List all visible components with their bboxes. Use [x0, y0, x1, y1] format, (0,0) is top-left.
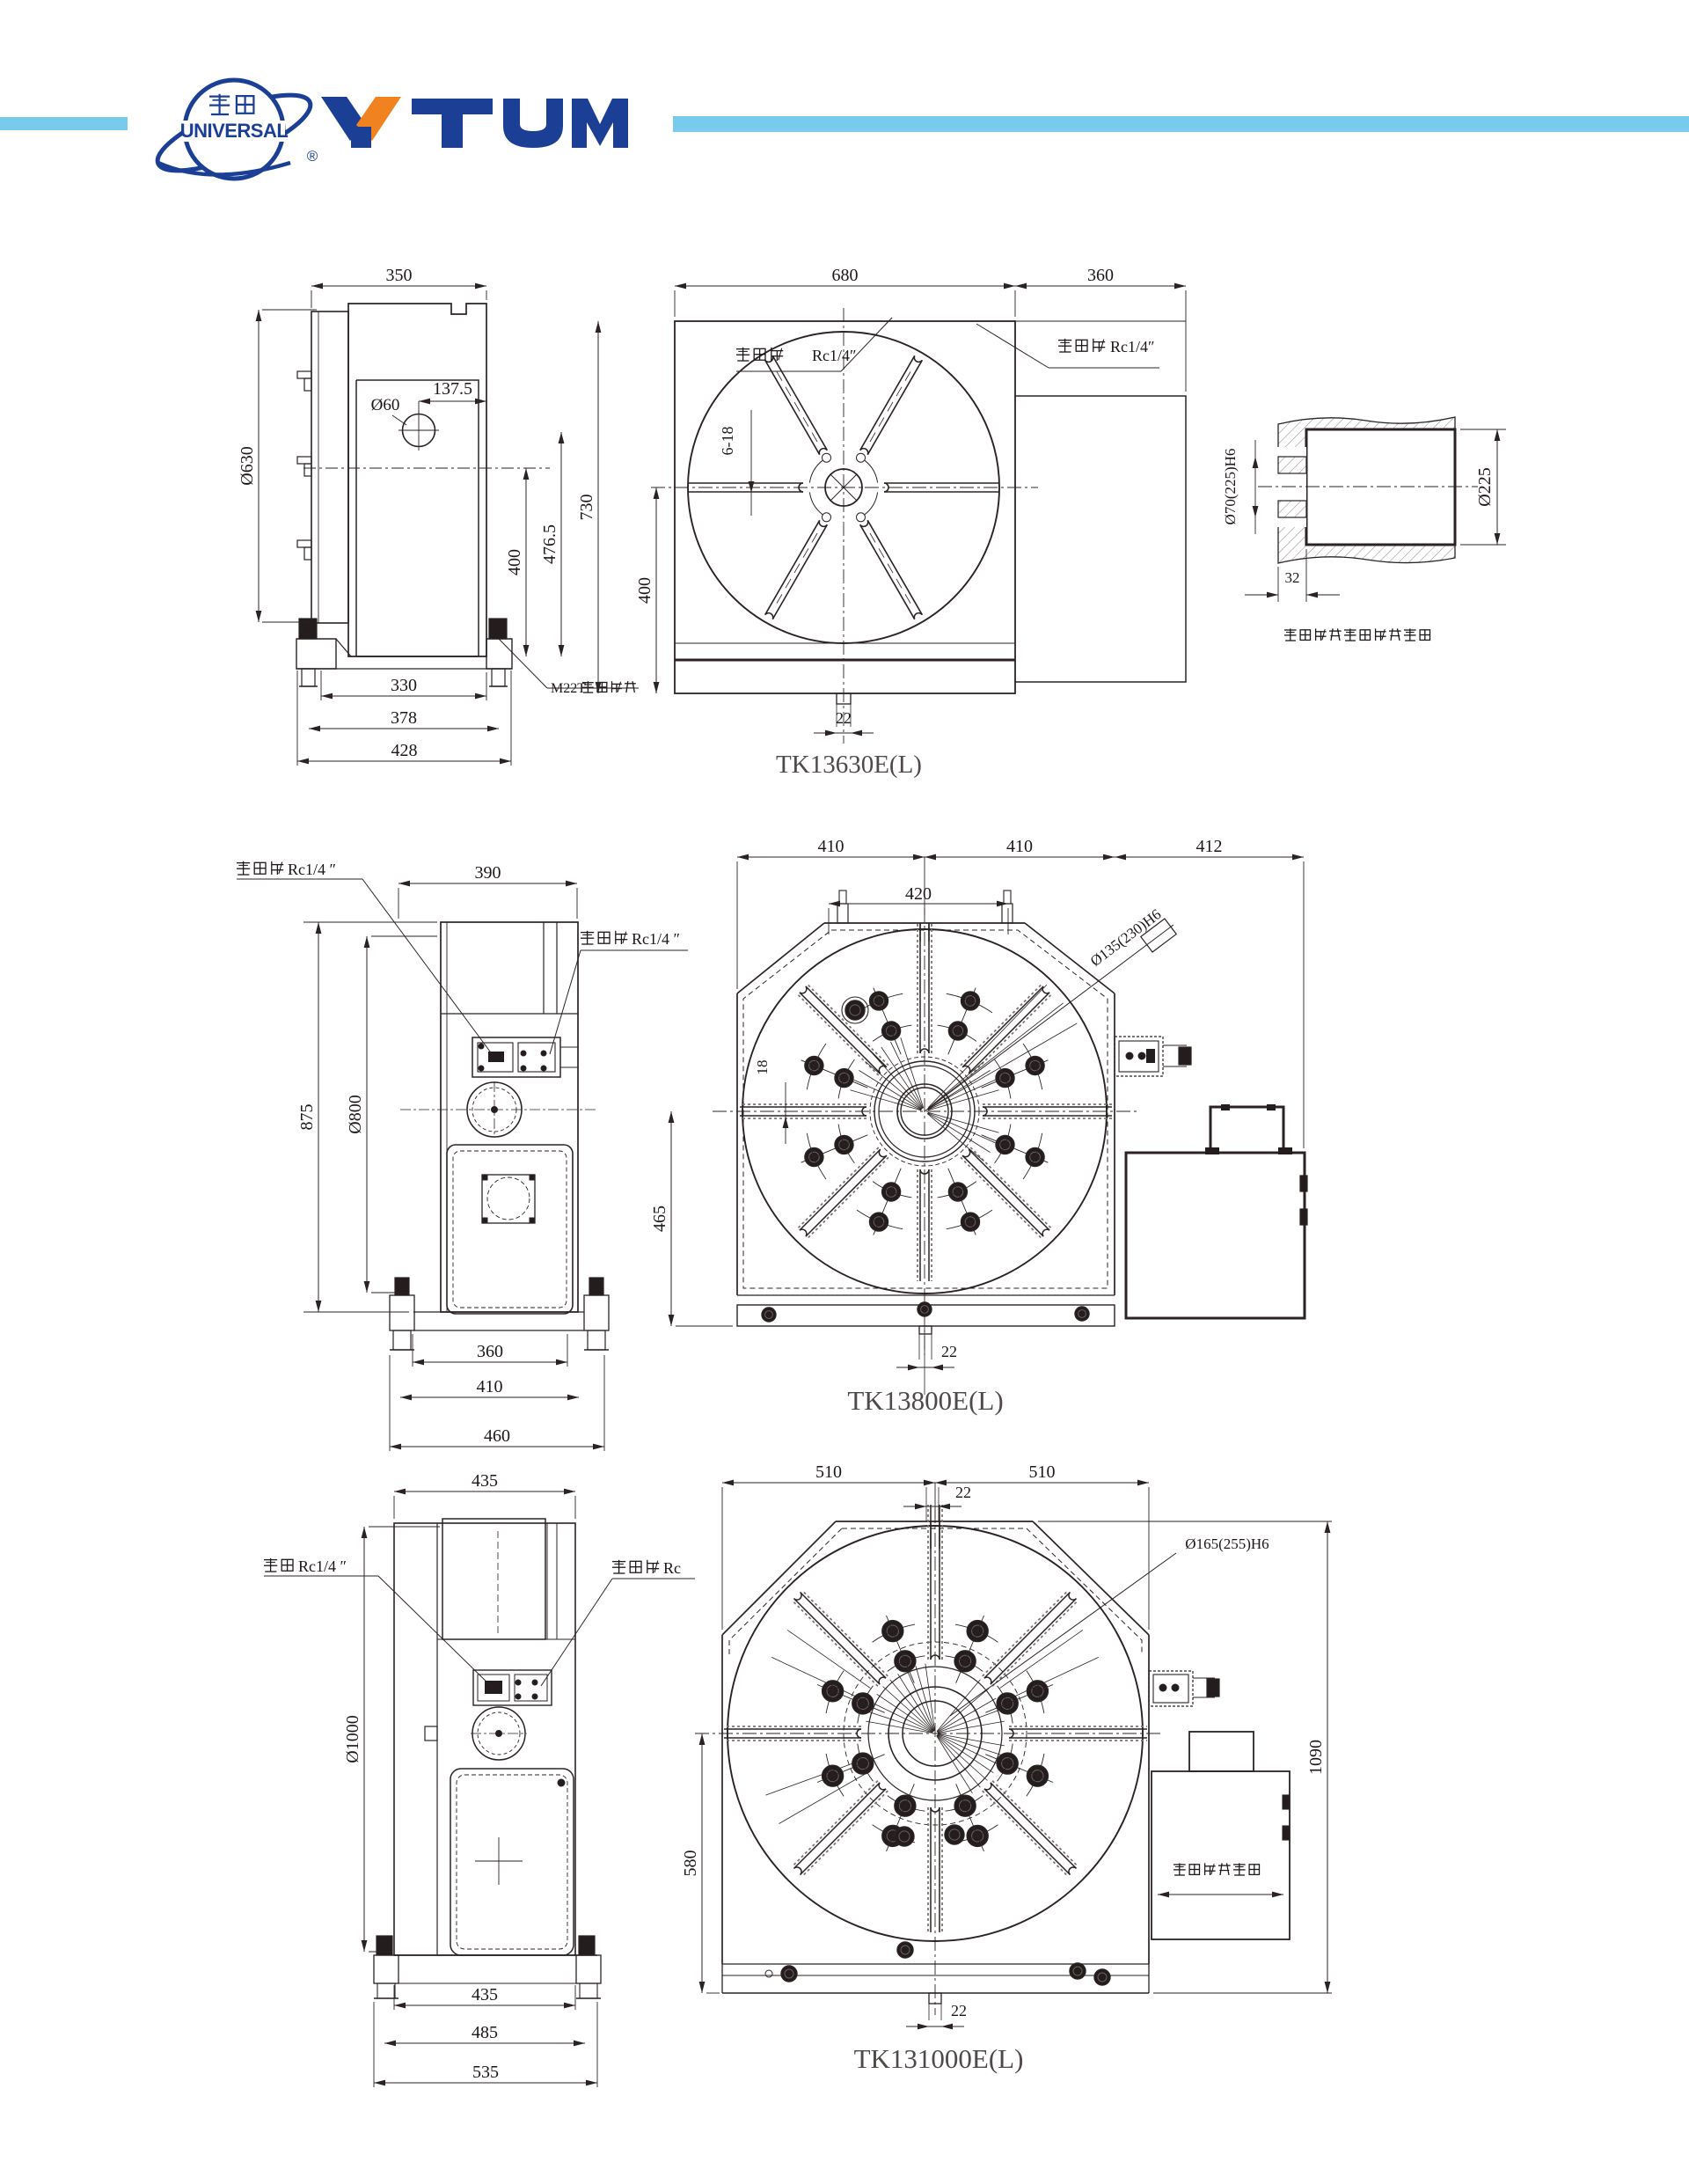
- svg-text:476.5: 476.5: [540, 524, 559, 564]
- svg-text:Ø165(255)H6: Ø165(255)H6: [1185, 1535, 1269, 1552]
- svg-text:32: 32: [1285, 569, 1300, 586]
- svg-text:UNIVERSAL: UNIVERSAL: [180, 120, 289, 142]
- svg-text:Rc1/4 ″: Rc1/4 ″: [298, 1557, 347, 1575]
- svg-text:Ø60: Ø60: [371, 396, 400, 414]
- svg-text:510: 510: [815, 1462, 842, 1482]
- svg-text:330: 330: [391, 676, 417, 695]
- svg-text:410: 410: [818, 837, 844, 856]
- svg-text:Rc1/4 ″: Rc1/4 ″: [632, 930, 680, 948]
- svg-text:Ø135(230)H6: Ø135(230)H6: [1087, 905, 1165, 970]
- svg-text:435: 435: [472, 1471, 498, 1491]
- svg-text:22: 22: [836, 709, 852, 727]
- svg-text:18: 18: [754, 1060, 771, 1075]
- svg-text:22: 22: [941, 1343, 957, 1360]
- svg-text:Ø225: Ø225: [1475, 467, 1495, 506]
- svg-text:Ø800: Ø800: [346, 1095, 365, 1133]
- svg-text:680: 680: [832, 266, 859, 285]
- svg-text:22: 22: [951, 2002, 967, 2019]
- svg-text:TK13630E(L): TK13630E(L): [776, 751, 922, 779]
- svg-text:410: 410: [477, 1377, 503, 1396]
- svg-text:®: ®: [307, 148, 318, 165]
- svg-text:Rc: Rc: [663, 1559, 681, 1577]
- svg-text:580: 580: [681, 1851, 700, 1877]
- svg-text:Ø630: Ø630: [238, 446, 257, 485]
- svg-text:378: 378: [391, 708, 417, 728]
- svg-text:400: 400: [635, 577, 654, 604]
- svg-text:6-18: 6-18: [719, 427, 736, 456]
- svg-text:428: 428: [391, 741, 418, 760]
- svg-text:TK13800E(L): TK13800E(L): [847, 1385, 1003, 1416]
- svg-text:Ø1000: Ø1000: [343, 1715, 362, 1763]
- svg-text:420: 420: [905, 884, 932, 904]
- svg-text:485: 485: [472, 2023, 498, 2042]
- svg-text:510: 510: [1029, 1462, 1056, 1482]
- svg-text:410: 410: [1006, 837, 1033, 856]
- svg-text:360: 360: [1087, 266, 1114, 285]
- svg-text:TK131000E(L): TK131000E(L): [854, 2043, 1024, 2074]
- svg-text:875: 875: [297, 1104, 317, 1131]
- svg-text:Ø70(225)H6: Ø70(225)H6: [1222, 449, 1239, 525]
- svg-text:350: 350: [386, 266, 413, 285]
- svg-text:1090: 1090: [1306, 1740, 1326, 1775]
- svg-text:22: 22: [955, 1484, 971, 1501]
- svg-text:730: 730: [577, 495, 596, 521]
- svg-text:535: 535: [472, 2063, 499, 2082]
- svg-text:400: 400: [505, 549, 524, 575]
- svg-text:Rc1/4″: Rc1/4″: [1110, 338, 1155, 355]
- svg-text:412: 412: [1196, 837, 1223, 856]
- svg-text:360: 360: [477, 1342, 503, 1361]
- svg-text:460: 460: [484, 1426, 510, 1446]
- svg-text:465: 465: [650, 1206, 669, 1232]
- svg-text:435: 435: [472, 1985, 498, 2004]
- svg-text:137.5: 137.5: [433, 379, 472, 399]
- svg-text:390: 390: [475, 863, 501, 883]
- svg-text:Rc1/4 ″: Rc1/4 ″: [288, 861, 336, 878]
